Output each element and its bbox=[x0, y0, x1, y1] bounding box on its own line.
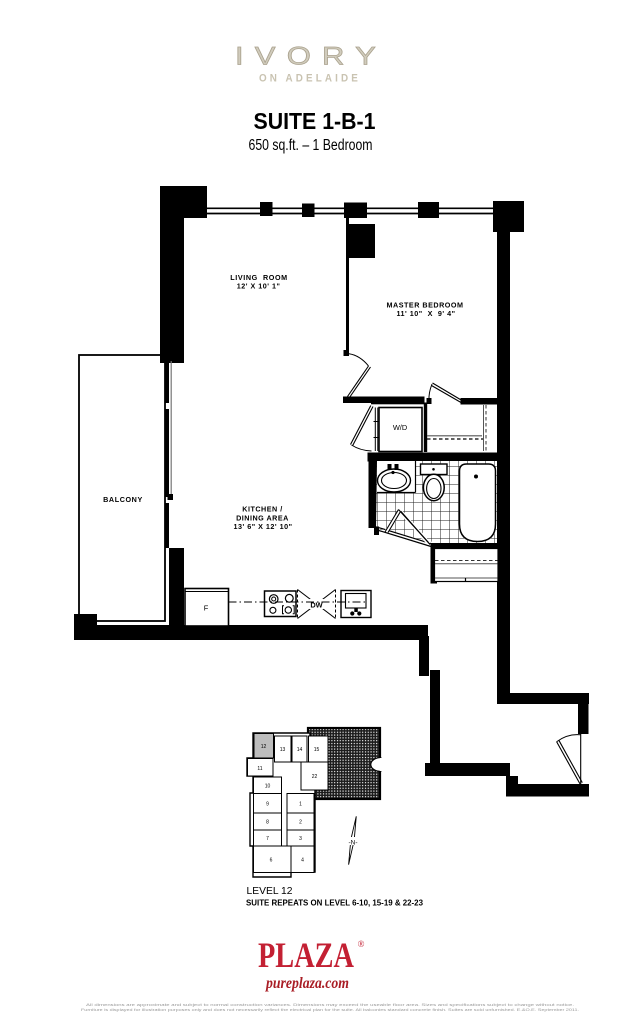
svg-text:®: ® bbox=[358, 939, 365, 949]
svg-text:13' 6" X 12' 10": 13' 6" X 12' 10" bbox=[234, 522, 293, 531]
svg-text:IVORY: IVORY bbox=[235, 43, 387, 71]
svg-text:F: F bbox=[204, 604, 209, 613]
svg-text:PLAZA: PLAZA bbox=[258, 935, 354, 975]
svg-text:Furniture is displayed for ill: Furniture is displayed for illustration … bbox=[81, 1007, 579, 1012]
svg-text:LEVEL 12: LEVEL 12 bbox=[247, 886, 293, 897]
svg-text:15: 15 bbox=[314, 747, 320, 753]
svg-text:3: 3 bbox=[299, 836, 302, 842]
svg-text:ON ADELAIDE: ON ADELAIDE bbox=[259, 73, 361, 85]
svg-text:8: 8 bbox=[266, 820, 269, 826]
svg-text:650 sq.ft. – 1 Bedroom: 650 sq.ft. – 1 Bedroom bbox=[249, 137, 373, 154]
svg-text:W/D: W/D bbox=[393, 423, 407, 432]
svg-text:BALCONY: BALCONY bbox=[103, 495, 143, 504]
svg-text:7: 7 bbox=[266, 836, 269, 842]
svg-text:6: 6 bbox=[270, 858, 273, 864]
svg-text:22: 22 bbox=[312, 774, 318, 780]
svg-text:10: 10 bbox=[265, 784, 271, 790]
svg-text:11' 10" X 9' 4": 11' 10" X 9' 4" bbox=[396, 309, 455, 318]
svg-text:SUITE REPEATS ON LEVEL 6-10, 1: SUITE REPEATS ON LEVEL 6-10, 15-19 & 22-… bbox=[246, 898, 423, 908]
svg-text:KITCHEN /: KITCHEN / bbox=[242, 505, 282, 514]
svg-text:12: 12 bbox=[261, 744, 267, 750]
svg-text:-N-: -N- bbox=[348, 840, 357, 847]
svg-text:pureplaza.com: pureplaza.com bbox=[264, 975, 349, 992]
svg-text:4: 4 bbox=[301, 858, 304, 864]
svg-text:12' X 10' 1": 12' X 10' 1" bbox=[237, 282, 281, 291]
svg-text:14: 14 bbox=[297, 747, 303, 753]
svg-text:SUITE 1-B-1: SUITE 1-B-1 bbox=[254, 108, 376, 134]
svg-text:1: 1 bbox=[299, 802, 302, 808]
svg-text:13: 13 bbox=[280, 747, 286, 753]
svg-text:2: 2 bbox=[299, 820, 302, 826]
svg-text:9: 9 bbox=[266, 802, 269, 808]
svg-text:11: 11 bbox=[257, 766, 262, 772]
